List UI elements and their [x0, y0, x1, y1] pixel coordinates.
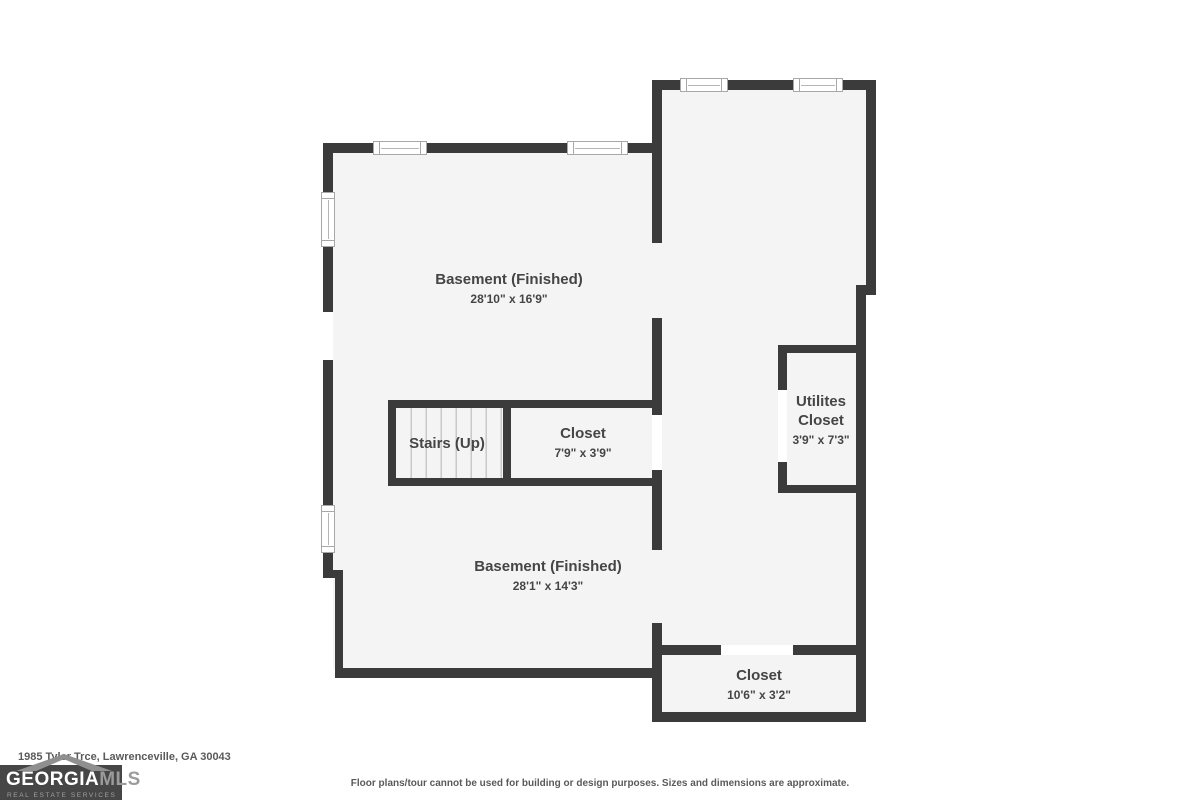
tagline-text: REAL ESTATE SERVICES — [7, 792, 116, 799]
room-dims: 28'1" x 14'3" — [474, 578, 622, 594]
wall-stairs-divider — [503, 400, 511, 486]
wall-closet-bottom-top-left — [652, 645, 721, 655]
room-dims: 3'9" x 7'3" — [778, 432, 864, 448]
wall-divider-a — [652, 80, 662, 243]
wall-util-left-upper — [778, 345, 787, 390]
window-symbol — [567, 141, 628, 155]
georgia-mls-logo: GEORGIAMLS REAL ESTATE SERVICES — [0, 765, 122, 800]
room-label-utilities-closet: Utilites Closet 3'9" x 7'3" — [778, 392, 864, 448]
logo-brand: GEORGIAMLS — [6, 770, 141, 790]
logo-brand-primary: GEORGIA — [6, 769, 99, 790]
logo-tagline: REAL ESTATE SERVICES — [4, 792, 118, 799]
wall-divider-d — [652, 623, 662, 722]
room-dims: 7'9" x 3'9" — [554, 445, 611, 461]
wall-util-bottom — [778, 485, 866, 493]
passage-upper — [652, 243, 662, 318]
window-symbol — [321, 505, 335, 553]
disclaimer-text: Floor plans/tour cannot be used for buil… — [0, 778, 1200, 789]
room-dims: 10'6" x 3'2" — [727, 687, 791, 703]
logo-brand-secondary: MLS — [99, 769, 141, 790]
room-label-stairs: Stairs (Up) — [409, 434, 485, 453]
wall-util-top — [778, 345, 866, 353]
window-symbol — [680, 78, 728, 92]
passage-lower — [652, 550, 662, 623]
wall-main-bottom — [335, 668, 662, 678]
wall-main-left-lower — [335, 570, 343, 678]
room-label-closet-mid: Closet 7'9" x 3'9" — [554, 424, 611, 461]
room-name: Basement (Finished) — [474, 557, 622, 576]
room-label-closet-bottom: Closet 10'6" x 3'2" — [727, 666, 791, 703]
room-name: Closet — [727, 666, 791, 685]
room-name: Stairs (Up) — [409, 434, 485, 453]
room-name: Basement (Finished) — [435, 270, 583, 289]
wall-stairs-left — [388, 400, 396, 486]
room-area-right-wing-strip — [856, 90, 866, 290]
floor-plan-page: Basement (Finished) 28'10" x 16'9" Stair… — [0, 0, 1200, 800]
room-label-basement-lower: Basement (Finished) 28'1" x 14'3" — [474, 557, 622, 594]
door-opening-bottom-closet — [721, 645, 793, 655]
wall-wing-right-upper — [866, 80, 876, 295]
door-opening-mid-closet — [652, 415, 662, 470]
wall-stairs-top — [388, 400, 662, 408]
wall-closet-bottom-top-right — [793, 645, 866, 655]
room-dims: 28'10" x 16'9" — [435, 291, 583, 307]
room-name: Closet — [554, 424, 611, 443]
window-symbol — [793, 78, 843, 92]
window-symbol — [321, 192, 335, 247]
wall-stairs-bottom — [388, 478, 662, 486]
wall-gap-left — [323, 312, 333, 360]
room-name: Utilites Closet — [778, 392, 864, 430]
wall-closet-bottom-bottom — [652, 712, 866, 722]
room-label-basement-upper: Basement (Finished) 28'10" x 16'9" — [435, 270, 583, 307]
window-symbol — [373, 141, 427, 155]
